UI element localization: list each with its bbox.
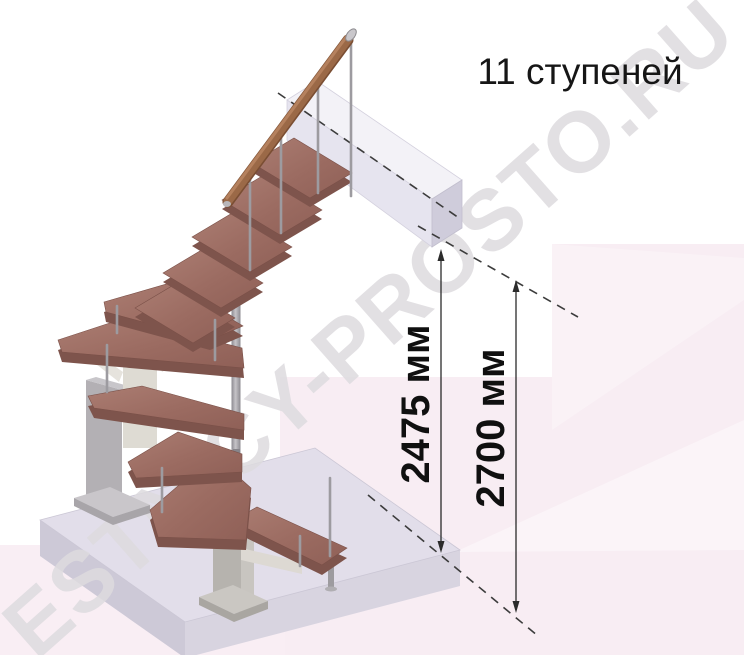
staircase-diagram: LESTNICY-PROSTO.RU 2475 мм 2700 мм [0,0,744,655]
dimension-label-2475: 2475 мм [394,324,438,483]
diagram-canvas: LESTNICY-PROSTO.RU 2475 мм 2700 мм [0,0,744,655]
handrail-end-tip [223,201,231,207]
page-title: 11 ступеней [477,51,682,92]
step1-leg-foot [325,587,337,592]
dimension-label-2700: 2700 мм [469,348,513,507]
arrowhead-up [513,280,520,292]
